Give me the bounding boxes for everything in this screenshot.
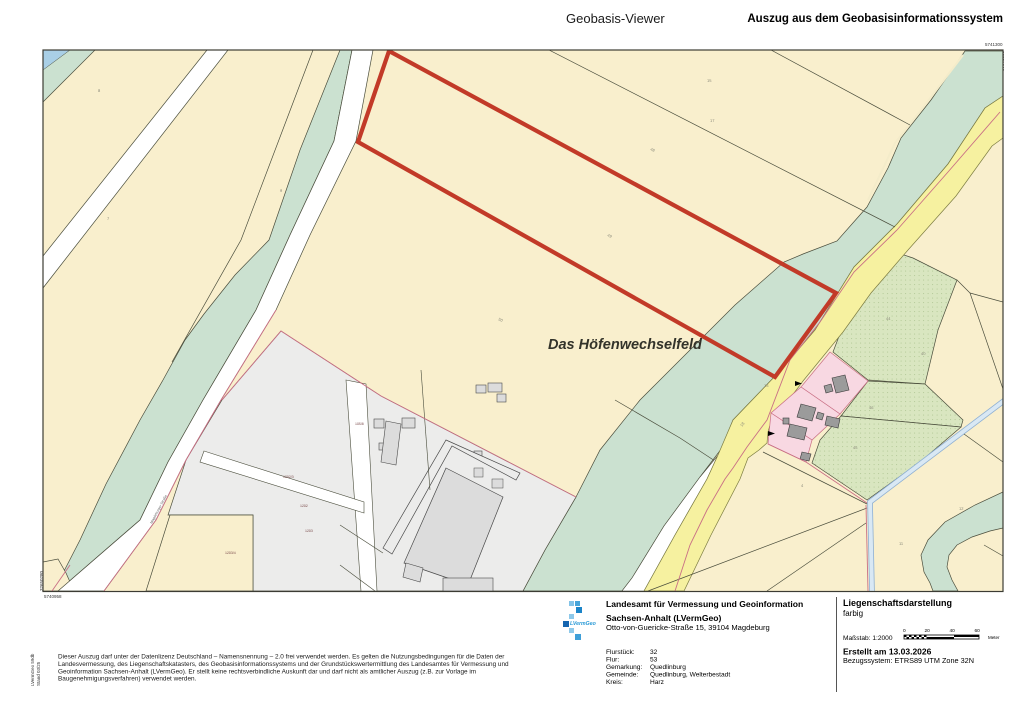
svg-text:60: 60 bbox=[975, 628, 981, 634]
svg-text:LVermGeo: LVermGeo bbox=[570, 621, 596, 627]
svg-text:0: 0 bbox=[903, 628, 906, 634]
svg-text:40: 40 bbox=[921, 351, 926, 356]
svg-text:1203: 1203 bbox=[305, 529, 313, 533]
svg-text:46: 46 bbox=[869, 405, 874, 410]
svg-text:40: 40 bbox=[950, 628, 956, 634]
svg-text:17: 17 bbox=[710, 118, 715, 123]
svg-text:15: 15 bbox=[707, 78, 712, 83]
svg-text:12: 12 bbox=[959, 506, 964, 511]
svg-text:1203/4: 1203/4 bbox=[225, 551, 236, 555]
svg-text:1202: 1202 bbox=[300, 504, 308, 508]
svg-text:13: 13 bbox=[764, 383, 769, 388]
svg-text:44: 44 bbox=[886, 316, 891, 321]
svg-text:105/8: 105/8 bbox=[355, 422, 364, 426]
svg-text:1202/3: 1202/3 bbox=[283, 475, 294, 479]
svg-text:45: 45 bbox=[853, 445, 858, 450]
svg-text:Meter: Meter bbox=[988, 635, 1000, 640]
svg-text:20: 20 bbox=[925, 628, 931, 634]
